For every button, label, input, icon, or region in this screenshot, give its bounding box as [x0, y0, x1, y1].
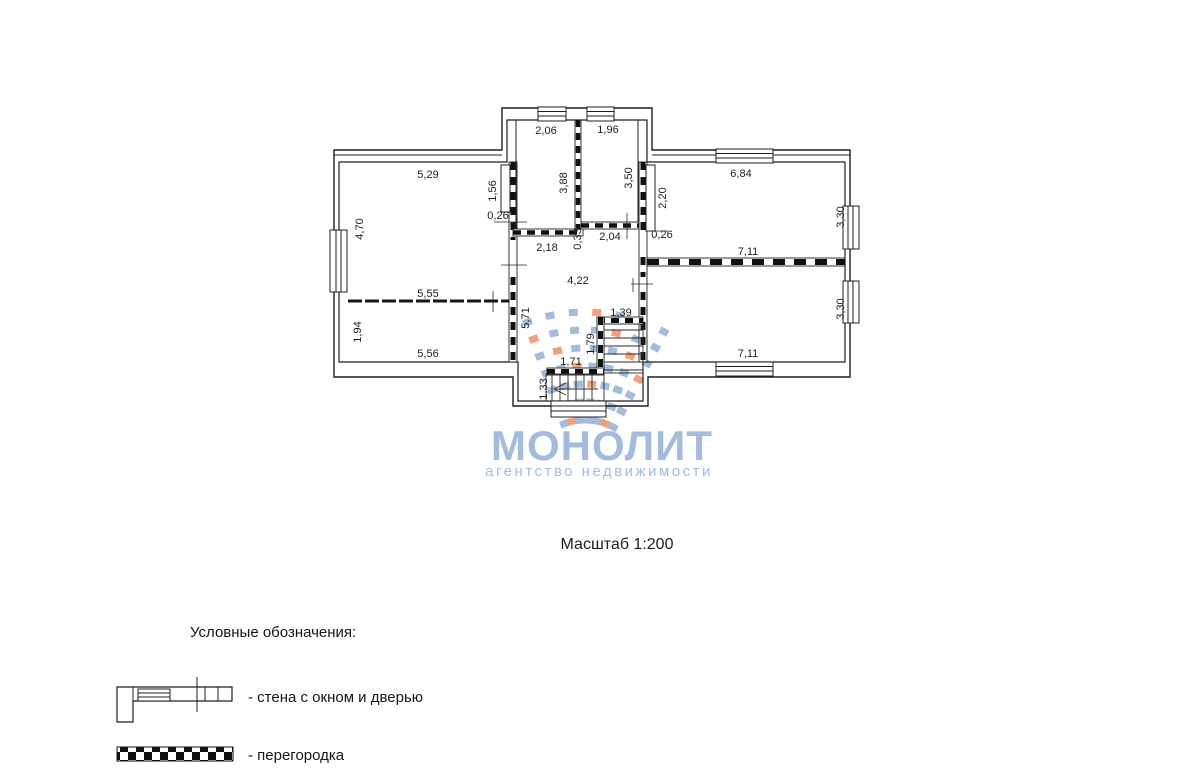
dim-label: 3,30 — [835, 298, 847, 319]
dim-label: 1,33 — [538, 378, 550, 399]
dim-label: 0,26 — [487, 210, 508, 222]
logo-tile — [570, 327, 579, 335]
dim-label: 1,56 — [487, 180, 499, 201]
logo-tile — [552, 347, 562, 356]
dim-label: 4,70 — [354, 218, 366, 239]
logo-tile — [534, 351, 545, 361]
dim-label: 2,18 — [536, 242, 557, 254]
dim-label: 0,26 — [651, 229, 672, 241]
logo-tile — [528, 334, 539, 344]
logo-tile — [545, 311, 555, 320]
dim-label: 5,29 — [417, 169, 438, 181]
dim-label: 7,11 — [738, 246, 759, 258]
logo-tile — [571, 345, 580, 353]
dim-label: 3,88 — [558, 172, 570, 193]
logo-tile — [624, 390, 635, 400]
logo-tile — [600, 382, 610, 391]
logo-tile — [574, 380, 583, 388]
legend-symbol-wall-window-door — [117, 677, 232, 722]
dim-label: 3,50 — [623, 167, 635, 188]
logo-tile — [616, 406, 627, 416]
legend-symbol-partition — [117, 747, 233, 761]
legend: Условные обозначения: - стена с окном и … — [117, 624, 423, 764]
dim-label: 2,20 — [657, 187, 669, 208]
dim-label: 2,04 — [599, 231, 620, 243]
dim-label: 3,30 — [835, 206, 847, 227]
logo-tile — [549, 329, 559, 338]
window-right-wing-top — [716, 149, 773, 163]
dim-label: 5,71 — [520, 307, 532, 328]
window-left-wall — [330, 230, 347, 292]
dim-label: 7,11 — [738, 348, 759, 360]
window-right-wing-bottom — [716, 362, 773, 376]
dim-label: 1,96 — [597, 124, 618, 136]
scale-label: Масштаб 1:200 — [561, 536, 674, 553]
logo-tile — [612, 385, 623, 395]
logo-tile — [604, 364, 614, 373]
logo-tile — [592, 309, 601, 317]
watermark-brand-text: МОНОЛИТ — [491, 422, 713, 469]
window-top-protrusion-1 — [538, 107, 566, 121]
dim-label: 1,39 — [610, 307, 631, 319]
dim-label: 1,94 — [352, 321, 364, 342]
dim-label: 4,22 — [567, 275, 588, 287]
floor-plan-page: МОНОЛИТ агентство недвижимости — [0, 0, 1200, 773]
logo-tile — [658, 326, 669, 336]
floor-plan-canvas: МОНОЛИТ агентство недвижимости — [0, 0, 1200, 773]
logo-tile — [606, 402, 617, 412]
window-bottom-protrusion — [551, 401, 606, 417]
dim-label: 1,79 — [585, 333, 597, 354]
watermark-tagline-text: агентство недвижимости — [485, 463, 713, 480]
dim-label: 2,06 — [535, 125, 556, 137]
window-top-protrusion-2 — [587, 107, 614, 121]
dim-label: 5,55 — [417, 288, 438, 300]
dim-label: 1,71 — [560, 356, 581, 368]
floor-plan: 5,29 2,06 1,96 6,84 4,70 1,56 3,88 3,50 … — [330, 107, 859, 417]
dim-label: 0,33 — [572, 228, 584, 249]
legend-label-wall: - стена с окном и дверью — [248, 689, 423, 706]
legend-heading: Условные обозначения: — [190, 624, 356, 641]
logo-tile — [625, 351, 636, 361]
logo-tile — [569, 309, 578, 317]
logo-tile — [650, 342, 661, 352]
dim-label: 5,56 — [417, 348, 438, 360]
legend-label-partition: - перегородка — [248, 747, 345, 764]
dim-label: 6,84 — [730, 168, 751, 180]
